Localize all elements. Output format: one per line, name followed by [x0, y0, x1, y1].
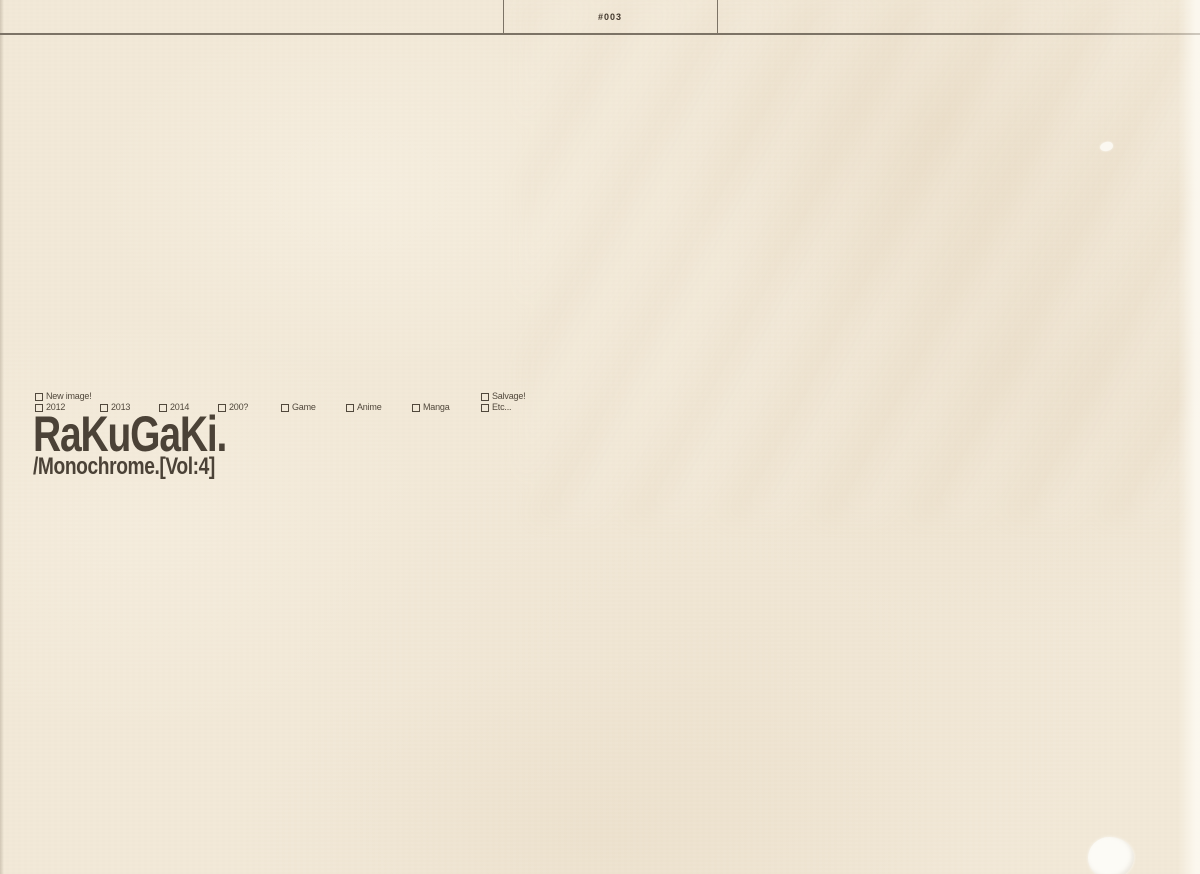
- tag-game: Game: [281, 403, 316, 412]
- tag-etc: Etc...: [481, 403, 511, 412]
- tag-label: Game: [292, 403, 316, 412]
- page-title: RaKuGaKi.: [33, 409, 226, 459]
- page-left-edge-shadow: [0, 0, 4, 874]
- tag-new-image: New image!: [35, 392, 92, 401]
- scanned-page: #003 New image! 2012 2013 2014 200? Game…: [0, 0, 1200, 874]
- checkbox-icon: [346, 404, 354, 412]
- page-subtitle: /Monochrome.[Vol:4]: [33, 455, 215, 479]
- page-right-edge-highlight: [1178, 0, 1200, 874]
- tag-label: Salvage!: [492, 392, 525, 401]
- tag-anime: Anime: [346, 403, 382, 412]
- paper-spot: [1088, 837, 1134, 874]
- tag-salvage: Salvage!: [481, 392, 525, 401]
- tag-label: 200?: [229, 403, 248, 412]
- header-rule: [0, 33, 1200, 35]
- tag-label: Anime: [357, 403, 382, 412]
- tag-label: New image!: [46, 392, 92, 401]
- tag-manga: Manga: [412, 403, 450, 412]
- checkbox-icon: [481, 393, 489, 401]
- checkbox-icon: [35, 393, 43, 401]
- tag-label: Etc...: [492, 403, 511, 412]
- paper-ghosting-streaks: [520, 0, 1200, 520]
- checkbox-icon: [412, 404, 420, 412]
- page-number-cell-right-border: [717, 0, 718, 33]
- paper-fleck: [1099, 141, 1114, 153]
- tag-label: Manga: [423, 403, 450, 412]
- checkbox-icon: [281, 404, 289, 412]
- checkbox-icon: [481, 404, 489, 412]
- page-number: #003: [503, 0, 717, 33]
